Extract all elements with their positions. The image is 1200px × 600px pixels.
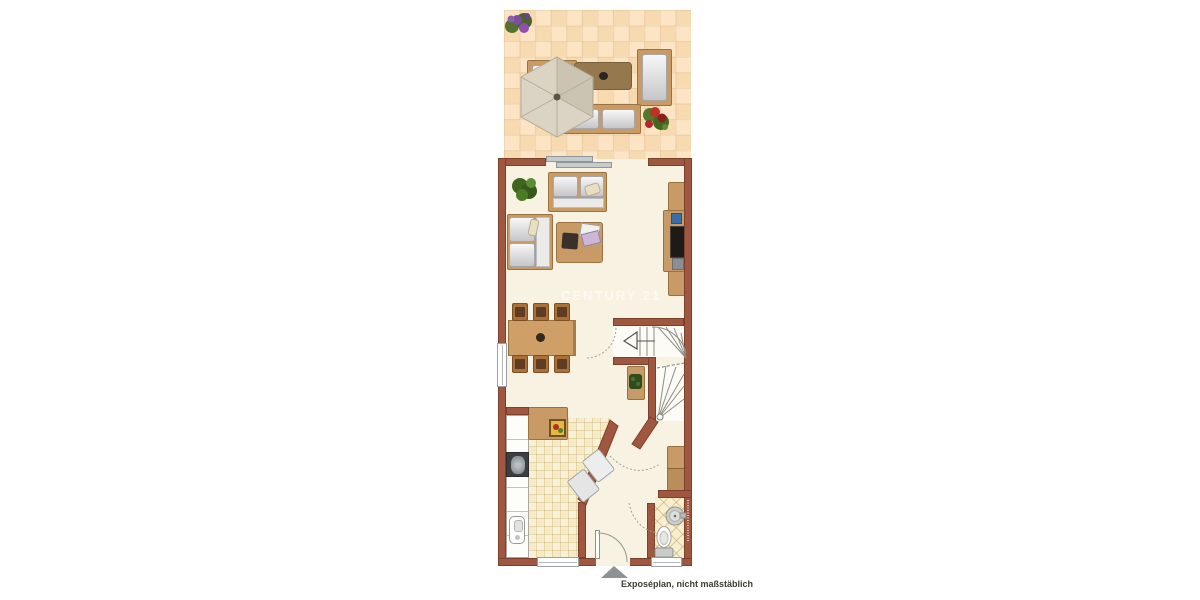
wall-kitchen-side	[578, 502, 586, 558]
kitchen-sink	[509, 516, 525, 544]
bathroom-window	[651, 557, 682, 567]
stair-lower-area	[656, 365, 684, 421]
dining-chair	[512, 303, 528, 321]
brand-watermark: CENTURY 21	[561, 288, 661, 303]
wall-bath-top	[658, 490, 692, 498]
dining-chair	[533, 303, 549, 321]
entrance-opening	[596, 558, 630, 566]
terrace-lounge-sofa	[527, 60, 577, 104]
terrace-garden-bench	[561, 104, 641, 134]
dining-chair	[533, 355, 549, 373]
entrance-door-leaf	[595, 530, 600, 559]
sideboard-decor-blue	[671, 213, 682, 224]
table-centerpiece	[536, 333, 545, 342]
sofa-seat	[553, 198, 604, 208]
tv	[670, 226, 685, 258]
sofa-cushion	[509, 243, 535, 267]
sideboard-decor-gray	[672, 258, 684, 270]
kitchen-wall-picture	[549, 419, 566, 437]
stove	[506, 452, 529, 477]
stair-upper-area	[613, 326, 684, 357]
table-decor-tray	[561, 232, 578, 249]
wall-kitchen-stub	[506, 407, 529, 415]
sliding-terrace-door-panel-2	[556, 162, 612, 168]
wall-bath-left	[647, 503, 655, 558]
sofa-cushion	[553, 176, 578, 197]
wall-right	[684, 158, 692, 566]
wall-stair-side	[648, 357, 656, 421]
plan-caption: Exposéplan, nicht maßstäblich	[621, 579, 753, 589]
dining-chair	[512, 355, 528, 373]
terrace-side-bench	[637, 49, 672, 106]
north-arrow	[601, 566, 628, 578]
wall-stair-mid	[613, 357, 649, 365]
bathroom-tiled-floor	[655, 498, 685, 558]
wall-stair-top	[613, 318, 684, 326]
dining-window	[497, 343, 507, 387]
dining-chair	[554, 303, 570, 321]
terrace-coffee-table	[574, 62, 632, 90]
dining-chair	[554, 355, 570, 373]
kitchen-window	[537, 557, 579, 567]
hall-cabinet	[627, 366, 645, 400]
floor-plan-canvas: CENTURY 21 Exposéplan, nicht maßstäblich	[0, 0, 1200, 600]
